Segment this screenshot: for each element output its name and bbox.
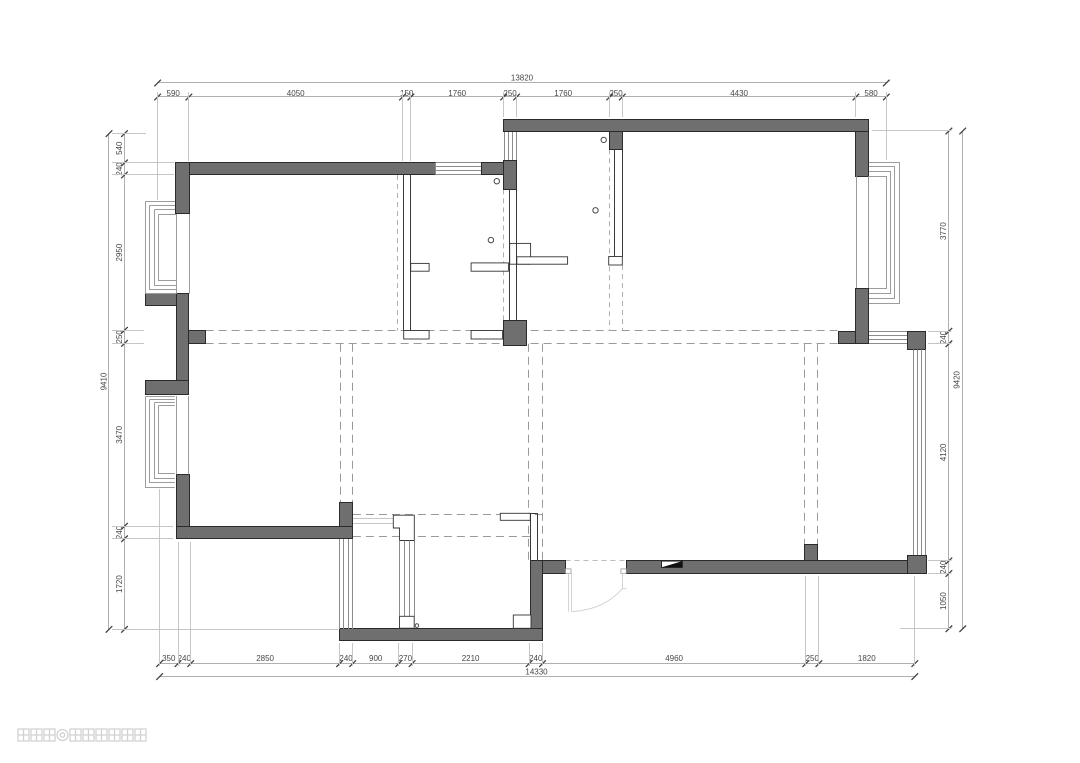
svg-text:9410: 9410	[100, 372, 109, 390]
svg-text:4120: 4120	[939, 443, 948, 461]
svg-text:2210: 2210	[462, 654, 480, 663]
svg-text:900: 900	[369, 654, 383, 663]
svg-text:9420: 9420	[953, 370, 962, 388]
svg-text:240: 240	[939, 330, 948, 344]
svg-text:2850: 2850	[256, 654, 274, 663]
svg-text:14330: 14330	[525, 667, 548, 676]
svg-text:590: 590	[167, 89, 181, 98]
svg-text:1760: 1760	[554, 89, 572, 98]
svg-text:4050: 4050	[287, 89, 305, 98]
svg-text:2950: 2950	[115, 243, 124, 261]
svg-text:270: 270	[399, 654, 413, 663]
svg-text:580: 580	[864, 89, 878, 98]
svg-text:250: 250	[806, 654, 820, 663]
svg-text:240: 240	[339, 654, 353, 663]
svg-text:240: 240	[115, 525, 124, 539]
svg-text:240: 240	[529, 654, 543, 663]
svg-text:4430: 4430	[730, 89, 748, 98]
svg-text:250: 250	[609, 89, 623, 98]
svg-text:4960: 4960	[665, 654, 683, 663]
svg-text:3470: 3470	[115, 425, 124, 443]
svg-text:240: 240	[115, 162, 124, 176]
svg-text:540: 540	[115, 141, 124, 155]
svg-text:240: 240	[178, 654, 192, 663]
svg-text:1050: 1050	[939, 592, 948, 610]
svg-text:240: 240	[939, 560, 948, 574]
svg-text:250: 250	[503, 89, 517, 98]
svg-text:1760: 1760	[448, 89, 466, 98]
svg-text:13820: 13820	[511, 74, 534, 83]
svg-text:1720: 1720	[115, 575, 124, 593]
svg-text:1820: 1820	[858, 654, 876, 663]
svg-text:250: 250	[115, 330, 124, 344]
svg-text:350: 350	[162, 654, 176, 663]
svg-text:3770: 3770	[939, 222, 948, 240]
